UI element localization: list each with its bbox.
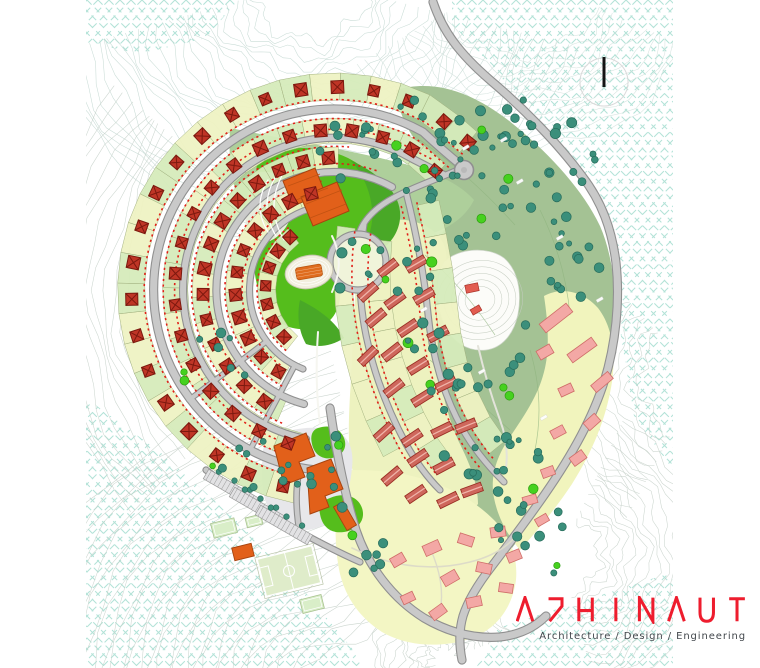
logo-tagline: Architecture / Design / Engineering	[514, 631, 746, 642]
tree-icon	[391, 153, 397, 159]
tree-icon	[436, 175, 442, 181]
house-marker	[175, 236, 188, 249]
tree-icon	[493, 487, 503, 497]
tree-icon	[432, 167, 438, 173]
tree-icon	[591, 156, 598, 163]
tree-icon	[518, 131, 524, 137]
tree-icon	[558, 523, 566, 531]
tree-icon	[505, 391, 514, 400]
tree-icon	[427, 257, 437, 267]
tree-icon	[478, 126, 486, 134]
tree-icon	[365, 271, 371, 277]
tree-icon	[405, 338, 410, 343]
tree-icon	[420, 164, 428, 172]
tree-icon	[578, 178, 586, 186]
tree-icon	[585, 243, 593, 251]
tree-icon	[227, 335, 233, 341]
tree-icon	[513, 532, 522, 541]
tree-icon	[440, 406, 447, 413]
tree-icon	[426, 273, 434, 281]
page: Architecture / Design / Engineering	[0, 0, 760, 668]
tree-icon	[286, 462, 292, 468]
tree-icon	[279, 477, 287, 485]
tree-icon	[520, 97, 526, 103]
tree-icon	[455, 173, 461, 179]
tree-icon	[227, 364, 234, 371]
tree-icon	[382, 276, 389, 283]
tree-icon	[555, 242, 563, 250]
tree-icon	[555, 282, 561, 288]
tree-icon	[498, 537, 503, 542]
tree-icon	[490, 145, 495, 150]
tree-icon	[415, 287, 423, 295]
tree-icon	[307, 479, 317, 489]
tree-icon	[441, 137, 447, 143]
house-marker	[376, 130, 390, 144]
tree-icon	[307, 472, 314, 479]
tree-icon	[335, 283, 345, 293]
tree-icon	[464, 364, 472, 372]
parcel-lot	[431, 268, 457, 305]
tree-icon	[516, 438, 521, 443]
tree-icon	[508, 203, 514, 209]
tree-icon	[250, 483, 257, 490]
tree-icon	[334, 131, 343, 140]
house-marker	[169, 267, 182, 280]
tree-icon	[509, 140, 517, 148]
parcel-lot	[340, 73, 372, 103]
tree-icon	[260, 438, 266, 444]
tree-icon	[470, 146, 479, 155]
tree-icon	[331, 431, 341, 441]
tree-icon	[181, 369, 188, 376]
house-marker	[231, 266, 243, 278]
tree-icon	[403, 187, 409, 193]
tree-icon	[439, 451, 449, 461]
house-marker	[197, 261, 212, 276]
tree-icon	[495, 524, 503, 532]
tree-icon	[434, 328, 444, 338]
tree-icon	[567, 118, 577, 128]
tree-icon	[494, 468, 500, 474]
logo-letter	[639, 598, 652, 622]
orange-building	[232, 543, 255, 560]
brand-logo: Architecture / Design / Engineering	[514, 596, 746, 642]
tree-icon	[236, 445, 243, 452]
tree-icon	[218, 464, 226, 472]
tree-icon	[554, 508, 562, 516]
tree-icon	[504, 174, 513, 183]
tree-icon	[377, 247, 384, 254]
house-marker	[229, 288, 242, 301]
tree-icon	[479, 173, 485, 179]
tree-icon	[419, 113, 427, 121]
tree-icon	[567, 241, 572, 246]
logo-letter	[549, 599, 562, 621]
tree-icon	[428, 344, 437, 353]
house-marker	[304, 187, 318, 201]
house-marker	[294, 83, 308, 97]
logo-letter	[669, 598, 685, 622]
tree-icon	[473, 383, 482, 392]
logo-letter	[517, 598, 533, 622]
tree-icon	[500, 384, 507, 391]
tree-icon	[492, 232, 500, 240]
tree-icon	[500, 185, 509, 194]
tree-icon	[430, 239, 437, 246]
tree-icon	[570, 168, 577, 175]
tree-icon	[418, 318, 428, 328]
map-layers	[0, 0, 760, 668]
tree-icon	[371, 565, 378, 572]
tree-icon	[348, 238, 356, 246]
tree-icon	[278, 467, 285, 474]
tree-icon	[511, 114, 520, 123]
logo-letter	[579, 598, 592, 622]
logo-letter	[700, 598, 713, 622]
house-marker	[331, 80, 344, 93]
tree-icon	[520, 502, 527, 509]
tree-icon	[457, 380, 465, 388]
tree-icon	[451, 140, 456, 145]
tree-icon	[526, 203, 536, 213]
tree-icon	[316, 147, 324, 155]
house-marker	[261, 298, 274, 311]
tree-icon	[463, 232, 469, 238]
tree-icon	[458, 157, 463, 162]
tree-icon	[455, 116, 465, 126]
map-marker-line	[603, 57, 606, 87]
tree-icon	[504, 497, 511, 504]
tree-icon	[336, 174, 345, 183]
tree-icon	[410, 96, 419, 105]
tree-icon	[561, 212, 571, 222]
tree-icon	[551, 570, 557, 576]
tree-icon	[509, 361, 518, 370]
tree-icon	[576, 292, 586, 302]
tree-icon	[362, 123, 371, 132]
house-marker	[126, 293, 138, 305]
tree-icon	[362, 550, 372, 560]
house-marker	[200, 313, 213, 326]
tree-icon	[243, 451, 250, 458]
tree-icon	[470, 469, 477, 476]
tree-icon	[330, 483, 337, 490]
tree-icon	[369, 148, 376, 155]
tree-icon	[546, 169, 553, 176]
tree-icon	[528, 122, 536, 130]
logo-wordmark	[516, 596, 746, 624]
house-marker	[197, 288, 209, 300]
tree-icon	[325, 444, 331, 450]
tree-icon	[533, 181, 539, 187]
tree-icon	[392, 141, 402, 151]
tree-icon	[427, 387, 435, 395]
tree-icon	[500, 466, 508, 474]
tree-icon	[475, 106, 485, 116]
tree-icon	[529, 484, 539, 494]
logo-letter	[729, 599, 745, 621]
tree-icon	[426, 193, 436, 203]
tree-icon	[521, 541, 530, 550]
tree-icon	[554, 562, 560, 568]
tree-icon	[545, 256, 554, 265]
house-marker	[169, 299, 181, 311]
master-plan-drawing	[0, 0, 760, 668]
house-marker	[296, 154, 311, 169]
tree-icon	[329, 467, 335, 473]
tree-icon	[241, 372, 248, 379]
house-marker	[175, 329, 189, 343]
house-marker	[260, 280, 271, 291]
sport-court	[300, 595, 325, 614]
tree-icon	[477, 214, 486, 223]
tree-icon	[348, 531, 357, 540]
house-marker	[368, 84, 381, 97]
football-field	[255, 543, 323, 598]
tree-icon	[294, 481, 300, 487]
tree-icon	[349, 568, 358, 577]
tree-icon	[551, 219, 557, 225]
tree-icon	[443, 216, 451, 224]
tree-icon	[214, 343, 223, 352]
house-marker	[314, 124, 327, 137]
tree-icon	[594, 263, 604, 273]
tree-icon	[378, 539, 387, 548]
tree-icon	[361, 244, 370, 253]
tree-icon	[530, 141, 538, 149]
tree-icon	[552, 193, 561, 202]
tree-icon	[535, 531, 545, 541]
tree-icon	[398, 104, 404, 110]
tree-icon	[335, 441, 343, 449]
tree-icon	[414, 246, 420, 252]
tree-icon	[403, 257, 412, 266]
site-plan-map	[0, 0, 760, 668]
tree-icon	[373, 551, 381, 559]
tree-icon	[499, 204, 507, 212]
tree-icon	[507, 439, 512, 444]
tree-icon	[521, 136, 530, 145]
tree-icon	[502, 105, 512, 115]
tree-icon	[521, 321, 530, 330]
house-marker	[126, 255, 141, 270]
tree-icon	[210, 463, 216, 469]
tree-icon	[454, 235, 463, 244]
tree-icon	[574, 254, 583, 263]
tree-icon	[547, 277, 555, 285]
tree-icon	[393, 287, 402, 296]
tree-icon	[550, 128, 560, 138]
tree-icon	[494, 436, 500, 442]
tree-icon	[216, 328, 226, 338]
tree-icon	[197, 336, 203, 342]
tree-icon	[534, 448, 542, 456]
tree-icon	[472, 445, 478, 451]
tree-icon	[484, 380, 492, 388]
house-marker	[345, 124, 359, 138]
house-marker	[232, 310, 247, 325]
tree-icon	[337, 502, 347, 512]
existing-building	[498, 583, 513, 594]
tree-icon	[337, 248, 347, 258]
tree-icon	[443, 369, 453, 379]
tree-icon	[180, 376, 189, 385]
tree-icon	[330, 121, 340, 131]
